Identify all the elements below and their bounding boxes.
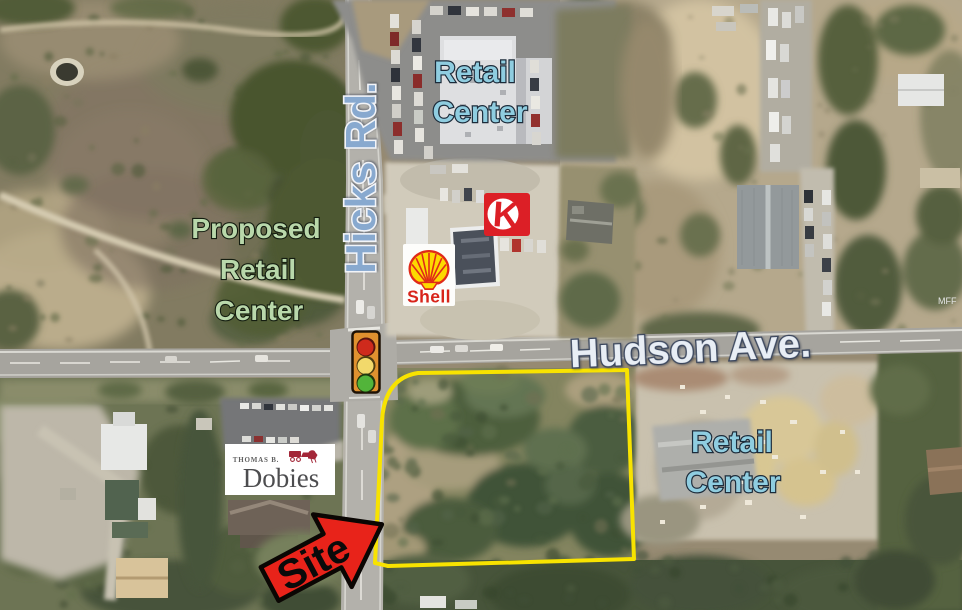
svg-text:Retail: Retail <box>691 426 773 459</box>
svg-text:Center: Center <box>215 295 304 326</box>
svg-text:MFF: MFF <box>938 296 957 306</box>
svg-text:Dobies: Dobies <box>243 463 320 493</box>
svg-text:K: K <box>492 193 521 236</box>
svg-text:Proposed: Proposed <box>191 213 320 244</box>
svg-text:Hicks Rd.: Hicks Rd. <box>337 82 384 273</box>
svg-text:Retail: Retail <box>220 254 296 285</box>
svg-text:Shell: Shell <box>407 287 451 307</box>
svg-text:Retail: Retail <box>434 56 516 89</box>
svg-text:Center: Center <box>432 96 527 129</box>
svg-text:Center: Center <box>685 466 780 499</box>
